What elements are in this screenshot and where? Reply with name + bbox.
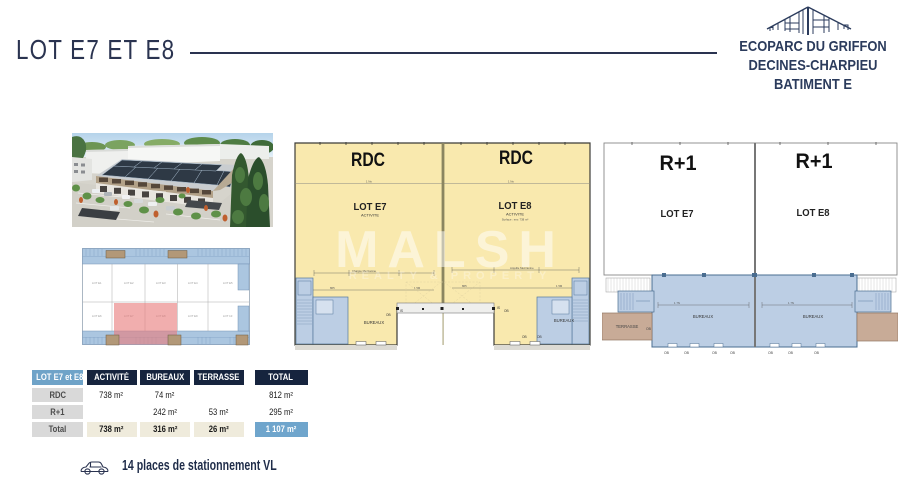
svg-text:ACTIVITE: ACTIVITE	[506, 212, 524, 217]
svg-text:BUREAUX: BUREAUX	[554, 318, 574, 323]
svg-text:OB: OB	[386, 313, 391, 317]
svg-text:865: 865	[330, 286, 335, 290]
svg-text:ACTIVITE: ACTIVITE	[361, 213, 379, 218]
svg-text:OB: OB	[537, 335, 542, 339]
svg-text:865: 865	[462, 284, 467, 288]
svg-text:OB: OB	[664, 351, 670, 355]
svg-text:OB: OB	[522, 335, 527, 339]
svg-text:LOT 10: LOT 10	[223, 314, 233, 318]
svg-text:OB: OB	[814, 351, 820, 355]
svg-text:LOT E7: LOT E7	[661, 208, 694, 220]
svg-text:LOT E5: LOT E5	[223, 281, 233, 285]
svg-text:OB: OB	[788, 351, 794, 355]
svg-text:IS: IS	[400, 309, 403, 313]
svg-text:1 5M: 1 5M	[556, 284, 563, 288]
svg-text:BUREAUX: BUREAUX	[693, 314, 713, 319]
svg-text:BUREAUX: BUREAUX	[364, 320, 384, 325]
svg-text:RDC: RDC	[499, 148, 533, 169]
svg-text:1 7N: 1 7N	[674, 301, 680, 305]
svg-text:LOT E8: LOT E8	[499, 200, 532, 212]
svg-text:LOT E3: LOT E3	[156, 281, 166, 285]
svg-text:OB: OB	[646, 327, 652, 331]
svg-text:RDC: RDC	[351, 150, 385, 171]
svg-text:LOT E7: LOT E7	[354, 201, 387, 213]
svg-text:IS: IS	[497, 306, 500, 310]
svg-text:OB: OB	[730, 351, 736, 355]
svg-text:1 Ns: 1 Ns	[508, 180, 514, 184]
svg-text:LOT E4: LOT E4	[188, 281, 198, 285]
svg-text:TERRASSE: TERRASSE	[616, 324, 639, 329]
svg-text:LOT E1: LOT E1	[92, 281, 102, 285]
svg-text:LOT E2: LOT E2	[124, 281, 134, 285]
svg-text:OB: OB	[712, 351, 718, 355]
svg-text:LOT E9: LOT E9	[188, 314, 198, 318]
svg-text:LOT E6: LOT E6	[92, 314, 102, 318]
svg-text:R+1: R+1	[796, 150, 833, 173]
svg-text:OB: OB	[684, 351, 690, 355]
svg-text:1 Ns: 1 Ns	[366, 180, 372, 184]
svg-text:BUREAUX: BUREAUX	[803, 314, 823, 319]
svg-text:LOT E8: LOT E8	[797, 207, 830, 219]
svg-text:R+1: R+1	[660, 152, 697, 175]
svg-text:OB: OB	[768, 351, 774, 355]
svg-text:OB: OB	[504, 309, 509, 313]
svg-text:1 7N: 1 7N	[788, 301, 794, 305]
